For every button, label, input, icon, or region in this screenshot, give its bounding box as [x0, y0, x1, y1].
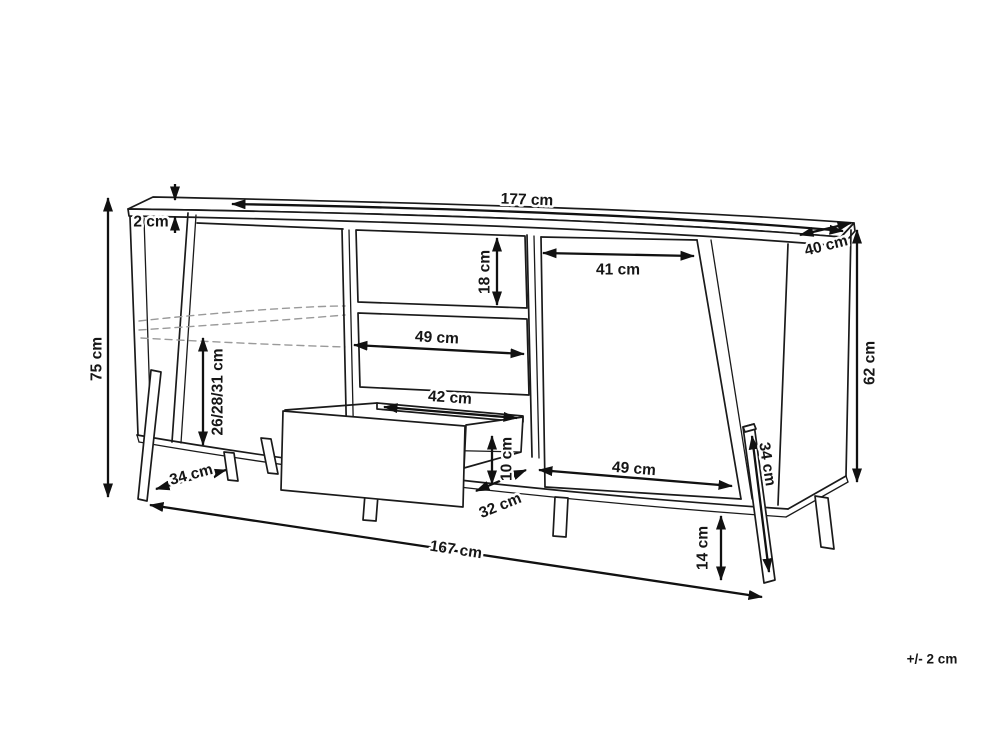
left-side-panel [130, 217, 138, 435]
open-drawer-front-panel [281, 411, 465, 507]
right-door-angled-edge-inner [711, 240, 752, 499]
technical-drawing-page: 177 cm 2 cm 40 cm 62 cm 75 cm 18 cm 41 c… [0, 0, 1000, 750]
left-door-top-edge [197, 223, 343, 229]
right-door-bottom-edge [545, 487, 741, 499]
middle-right-leg [553, 497, 568, 537]
dim-middle-drawer-width-label: 49 cm [415, 328, 460, 347]
shelf-hidden-line-bottom [141, 338, 345, 347]
dim-open-drawer-depth-label: 32 cm [477, 490, 524, 522]
divider-right-inner [534, 236, 539, 458]
dim-total-height-label: 75 cm [88, 337, 105, 381]
right-door-angled-edge [697, 240, 741, 499]
dim-top-width-label: 177 cm [500, 191, 553, 210]
dim-compartment-heights-label: 26/28/31 cm [209, 348, 226, 435]
shelf-hidden-line-top [139, 306, 345, 321]
dim-top-drawer-height-label: 18 cm [476, 250, 493, 294]
dim-open-drawer-width-label: 42 cm [427, 388, 472, 408]
dim-right-door-top-width-arrow [543, 253, 694, 256]
open-drawer [281, 403, 523, 507]
sideboard-dimension-diagram: 177 cm 2 cm 40 cm 62 cm 75 cm 18 cm 41 c… [0, 0, 1000, 750]
right-side-outer-edge [846, 230, 851, 476]
front-right-leg [815, 496, 834, 549]
tolerance-note: +/- 2 cm [907, 652, 958, 667]
top-drawer-front [356, 230, 527, 308]
dim-open-drawer-height-label: 10 cm [498, 437, 515, 481]
dim-top-thickness-label: 2 cm [133, 213, 168, 230]
dim-leg-height-label: 14 cm [694, 526, 711, 570]
right-door-top-edge [541, 237, 697, 240]
right-door-left-edge [541, 237, 545, 487]
dim-body-height-label: 62 cm [861, 341, 878, 385]
right-side-bottom-cap [846, 476, 848, 482]
dim-base-width-label: 167 cm [429, 538, 484, 563]
dim-right-door-bottom-width-label: 49 cm [611, 459, 656, 479]
right-stile-edge [778, 244, 788, 505]
rear-left-leg [224, 452, 238, 481]
dim-left-leg-spacing-label: 34 cm [168, 461, 215, 489]
dim-right-door-top-width-label: 41 cm [596, 261, 640, 278]
open-drawer-left-wall-top [285, 403, 377, 410]
left-door-left-edge-inner [181, 215, 196, 443]
